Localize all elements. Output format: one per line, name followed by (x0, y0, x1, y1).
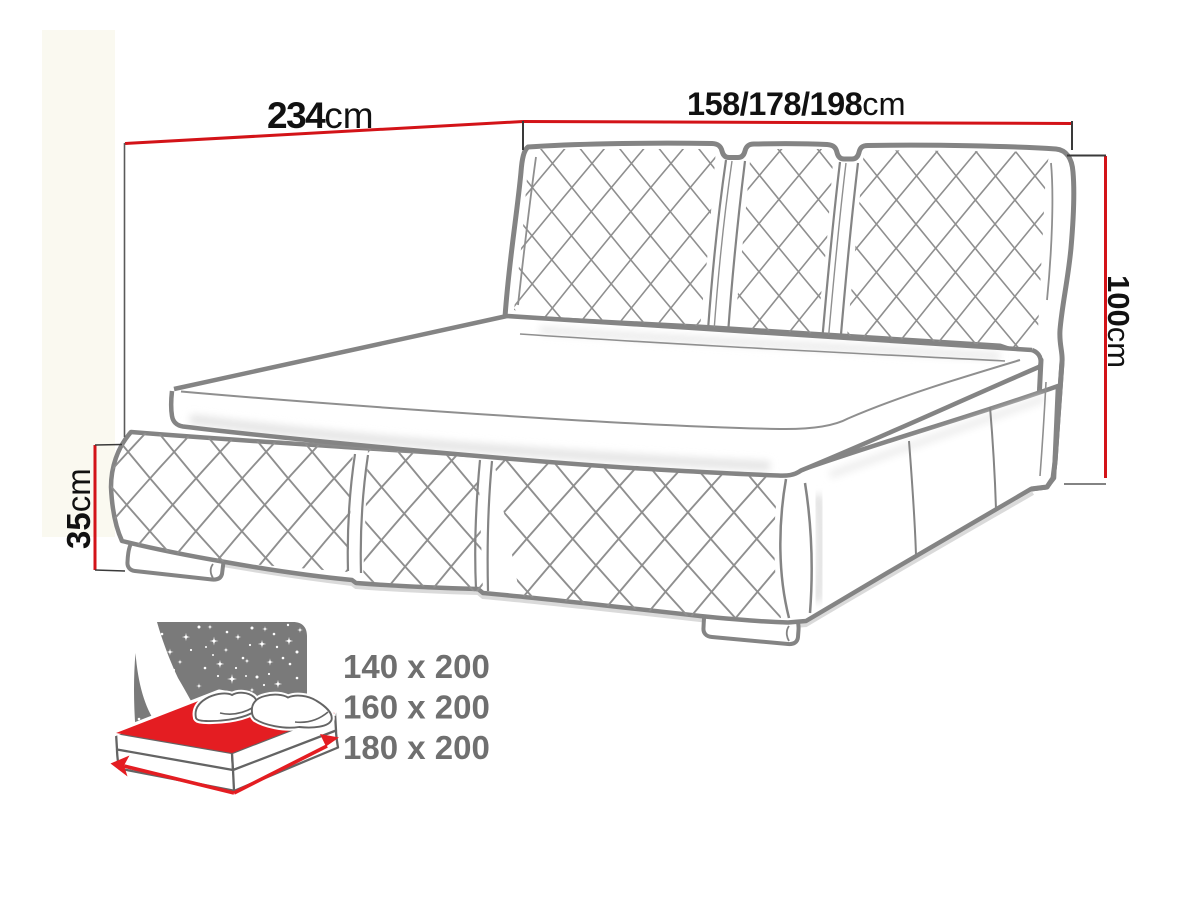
svg-text:158/178/198cm: 158/178/198cm (687, 86, 906, 122)
svg-text:140 x 200: 140 x 200 (343, 648, 490, 685)
svg-text:100cm: 100cm (1101, 275, 1136, 368)
svg-text:180 x 200: 180 x 200 (343, 729, 490, 766)
svg-text:160 x 200: 160 x 200 (343, 689, 490, 726)
svg-text:35cm: 35cm (60, 468, 97, 549)
svg-text:234cm: 234cm (267, 95, 374, 136)
